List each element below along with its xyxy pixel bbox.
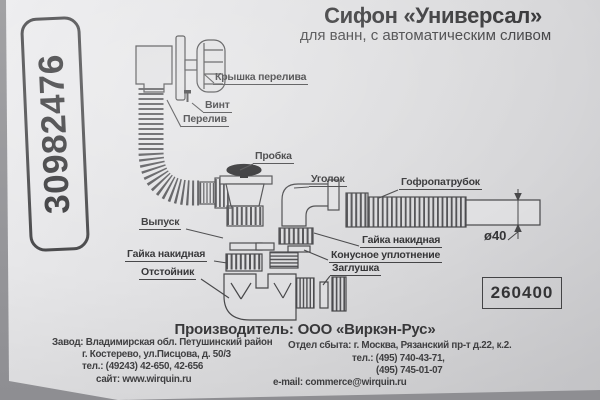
label-cap: Заглушка — [330, 263, 381, 276]
label-union-nut-left: Гайка накидная — [125, 249, 207, 262]
label-screw: Винт — [203, 100, 232, 113]
label-overflow: Перелив — [181, 114, 229, 127]
product-code: 260400 — [491, 283, 554, 303]
label-corrugated-pipe: Гофропатрубок — [399, 177, 482, 190]
badge: 30982476 — [20, 16, 90, 252]
label-sump: Отстойник — [139, 267, 196, 280]
sales-address-line1: Отдел сбыта: г. Москва, Рязанский пр-т д… — [288, 340, 511, 351]
page-subtitle: для ванн, с автоматическим сливом — [268, 27, 583, 44]
label-elbow: Уголок — [309, 174, 347, 187]
dimension-label: ø40 — [484, 228, 506, 243]
factory-address-line1: Завод: Владимирская обл. Петушинский рай… — [52, 337, 272, 348]
product-code-box: 260400 — [482, 277, 562, 309]
page-title: Сифон «Универсал» — [283, 3, 583, 29]
label-overflow-cap: Крышка перелива — [213, 72, 308, 85]
overflow-head-drawing — [136, 36, 225, 100]
label-plug: Пробка — [253, 151, 294, 164]
photo-background: 30982476 Сифон «Универсал» для ванн, с а… — [0, 0, 600, 400]
factory-address-line4: сайт: www.wirquin.ru — [96, 374, 191, 385]
factory-address-line2: г. Костерево, ул.Писцова, д. 50/3 — [82, 349, 231, 360]
corrugated-pipe-drawing — [346, 193, 540, 227]
sales-address-line3: (495) 745-01-07 — [376, 365, 443, 376]
manufacturer-line: Производитель: ООО «Виркэн-Рус» — [120, 321, 490, 338]
seal-parts-drawing — [226, 243, 298, 271]
label-union-nut-right: Гайка накидная — [360, 235, 442, 248]
sump-drawing — [224, 274, 346, 320]
sales-address-line4: e-mail: commerce@wirquin.ru — [273, 377, 406, 388]
elbow-drawing — [279, 180, 339, 252]
badge-number: 30982476 — [32, 53, 79, 214]
drain-assembly-drawing — [200, 165, 272, 227]
label-outlet: Выпуск — [139, 217, 181, 230]
sales-address-line2: тел.: (495) 740-43-71, — [352, 353, 445, 364]
factory-address-line3: тел.: (49243) 42-650, 42-656 — [82, 361, 203, 372]
